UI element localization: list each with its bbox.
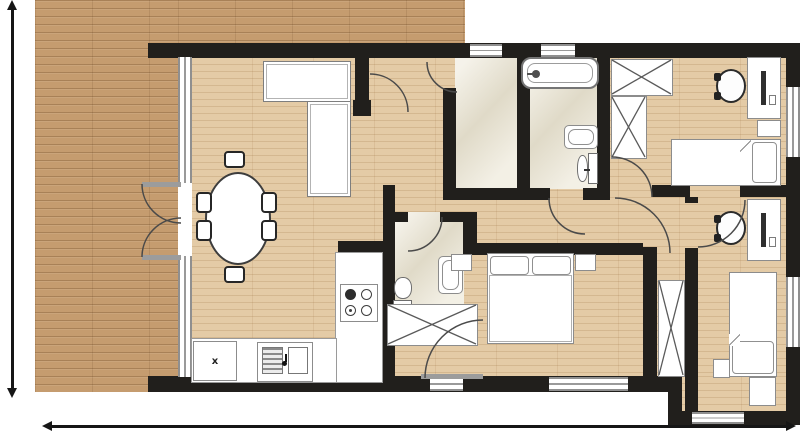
bathroom-door-arc [549,198,585,234]
height-dimension-line-arrow-top [7,0,17,10]
hall-end-door-arc [615,198,670,253]
width-dimension-line-arrow-right [786,421,796,431]
width-dimension-line-arrow-left [42,421,52,431]
door-arcs-layer [0,0,800,433]
living-room-door-arc [370,74,408,112]
utility-door-arc [427,62,457,92]
terrace-french-door-arc-upper [142,184,181,223]
wc-door-arc [408,217,442,251]
bedroom2-door-arc [698,200,745,247]
width-dimension-line [51,425,787,428]
floor-plan-canvas: x [0,0,800,433]
master-bedroom-door-arc [425,320,483,378]
height-dimension-line [11,9,14,389]
terrace-french-door-arc-lower [142,218,181,257]
bedroom1-door-arc [612,157,652,197]
height-dimension-line-arrow-bottom [7,388,17,398]
